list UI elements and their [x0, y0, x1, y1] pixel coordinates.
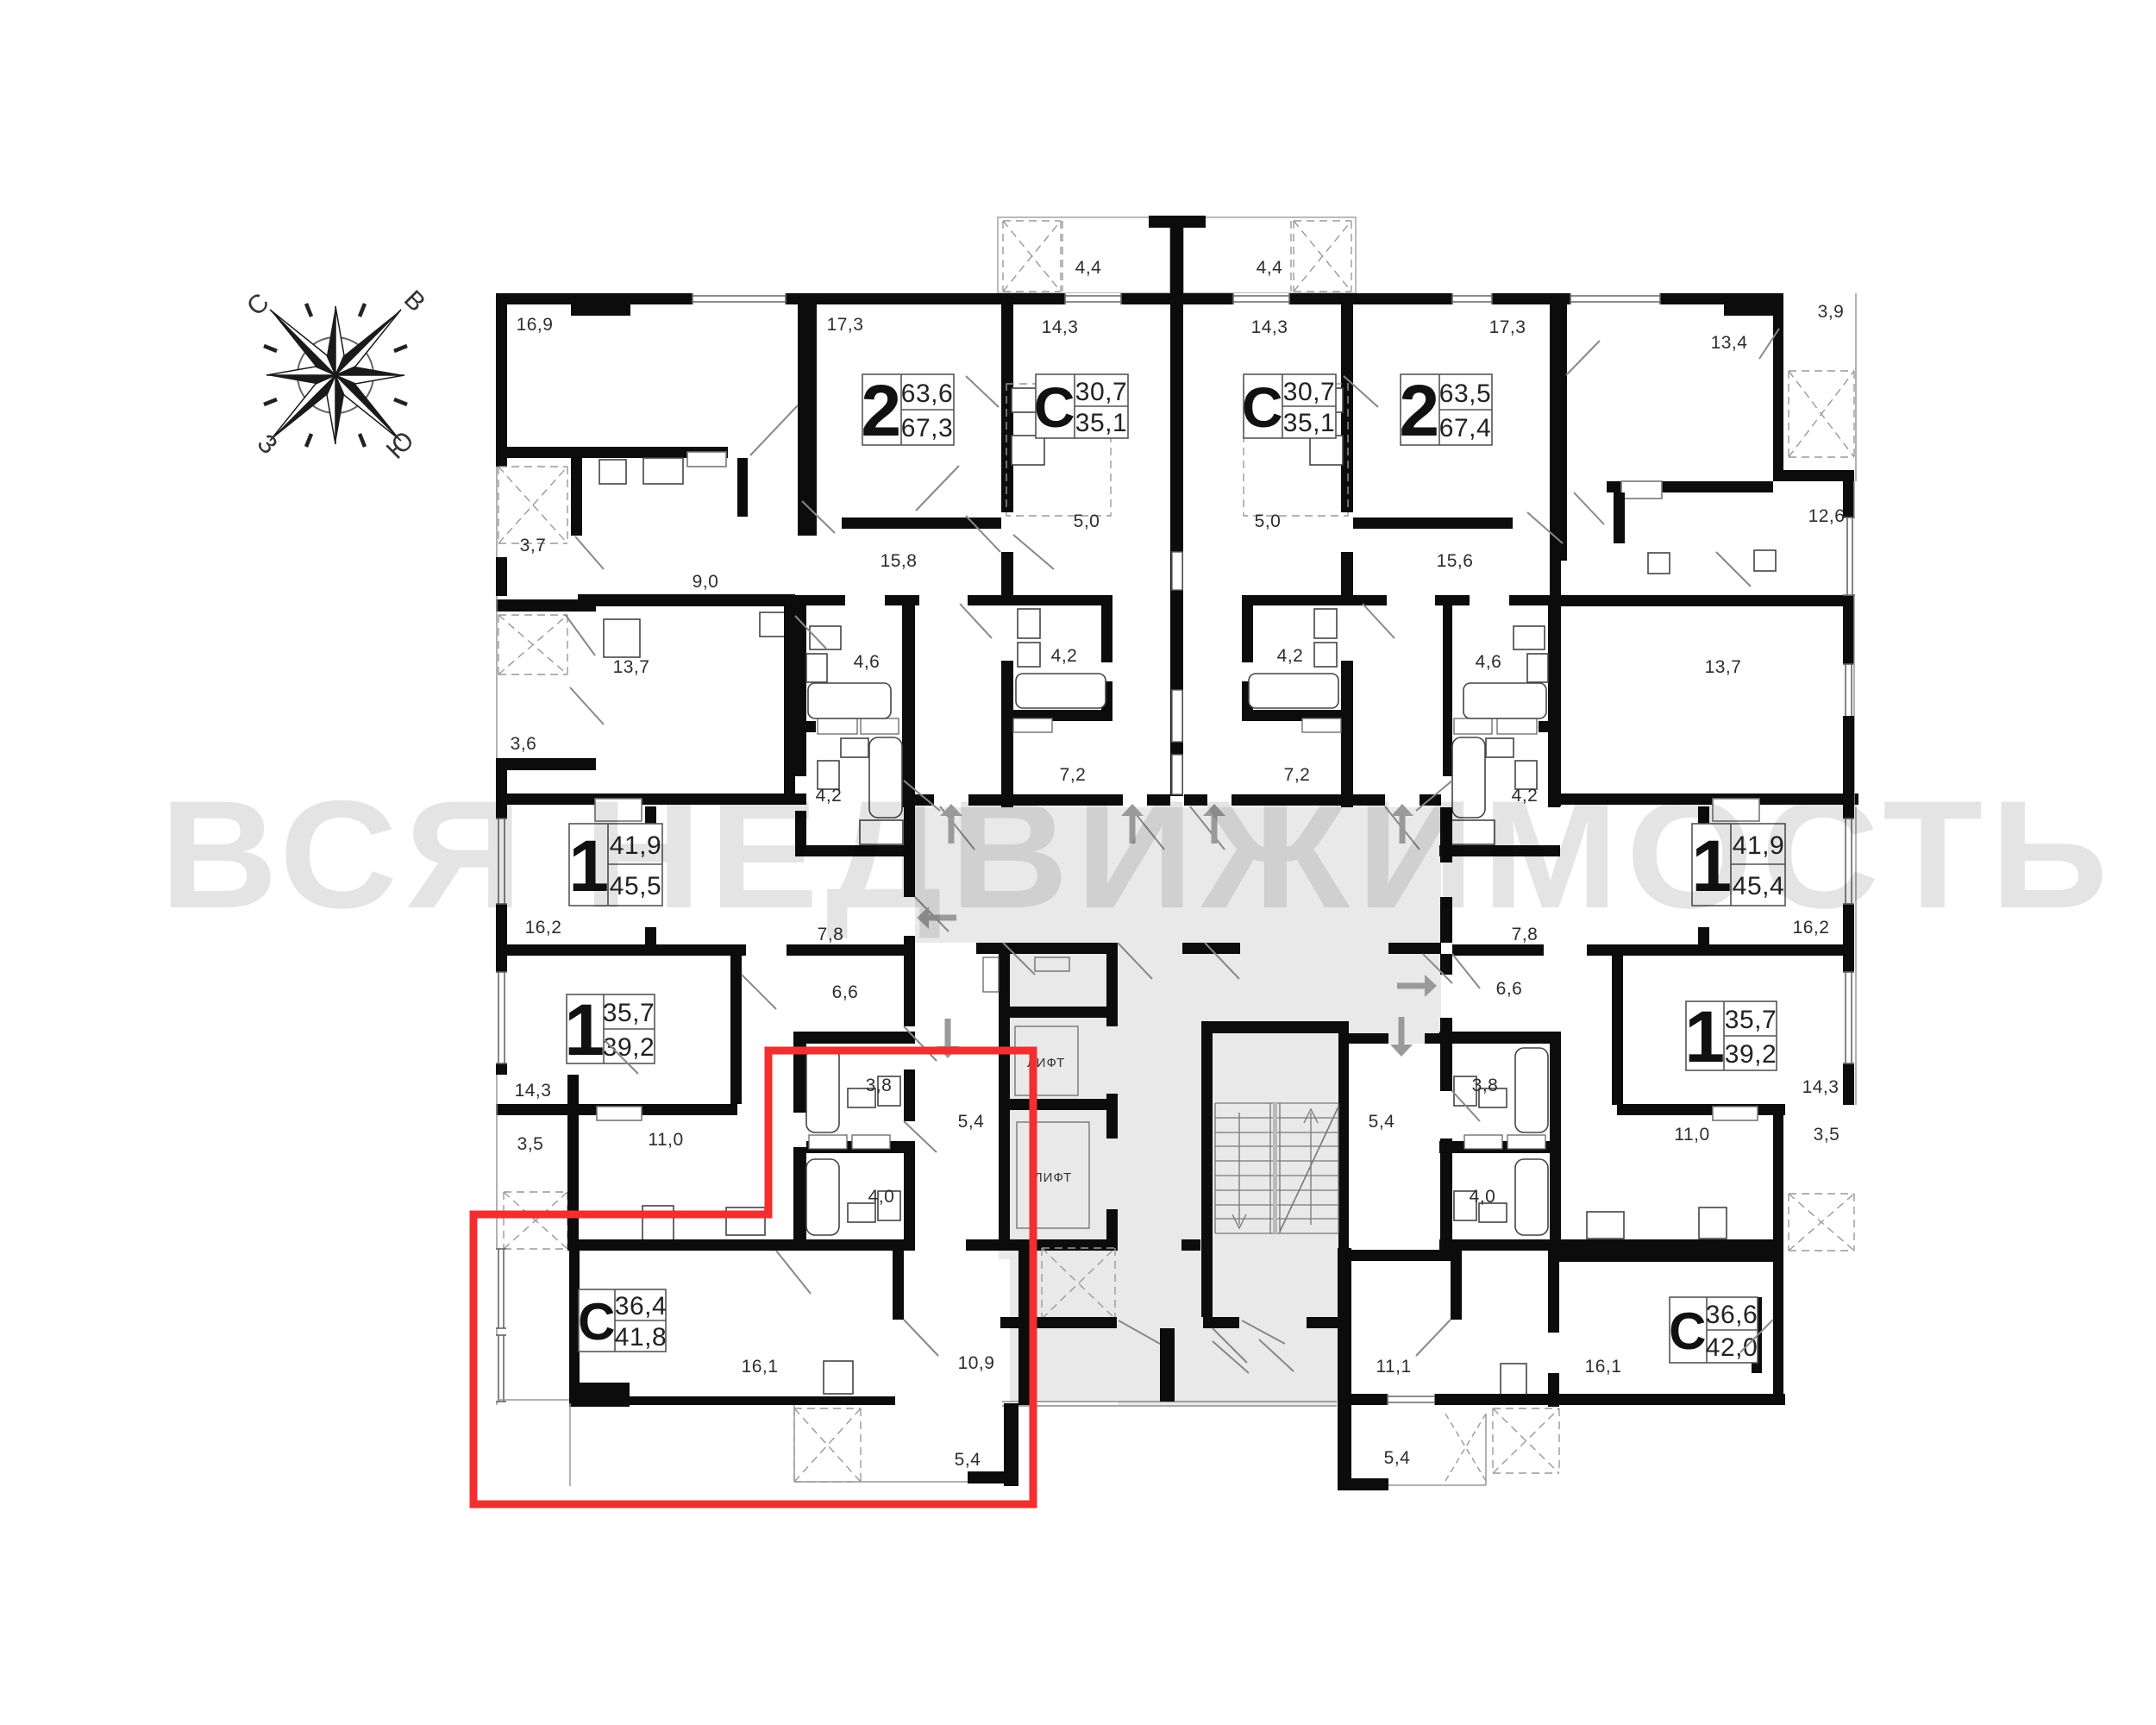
svg-text:3,5: 3,5	[517, 1134, 544, 1154]
svg-text:39,2: 39,2	[1725, 1040, 1777, 1069]
svg-text:3,8: 3,8	[1472, 1076, 1499, 1095]
svg-text:5,4: 5,4	[958, 1112, 985, 1132]
svg-text:5,0: 5,0	[1074, 511, 1100, 531]
svg-text:13,4: 13,4	[1711, 333, 1748, 353]
svg-text:4,4: 4,4	[1075, 258, 1102, 278]
svg-text:3,9: 3,9	[1818, 302, 1845, 322]
svg-text:6,6: 6,6	[832, 982, 859, 1002]
svg-text:39,2: 39,2	[603, 1033, 655, 1062]
svg-text:17,3: 17,3	[1489, 317, 1526, 337]
svg-text:35,1: 35,1	[1283, 409, 1335, 437]
svg-text:15,6: 15,6	[1437, 551, 1474, 571]
svg-text:13,7: 13,7	[1705, 657, 1742, 677]
svg-text:16,9: 16,9	[517, 315, 554, 335]
svg-text:35,7: 35,7	[603, 999, 655, 1027]
svg-text:4,2: 4,2	[1051, 646, 1078, 666]
svg-text:1: 1	[1684, 996, 1725, 1077]
svg-text:4,4: 4,4	[1257, 258, 1283, 278]
svg-text:15,8: 15,8	[881, 551, 918, 571]
svg-text:9,0: 9,0	[693, 572, 719, 592]
svg-text:1: 1	[564, 989, 605, 1070]
svg-text:41,8: 41,8	[615, 1323, 667, 1352]
svg-text:14,3: 14,3	[1042, 317, 1079, 337]
svg-text:2: 2	[861, 370, 901, 451]
svg-text:35,7: 35,7	[1725, 1006, 1777, 1034]
svg-text:36,6: 36,6	[1706, 1301, 1758, 1329]
svg-text:17,3: 17,3	[827, 315, 864, 335]
svg-text:36,4: 36,4	[615, 1292, 667, 1320]
svg-text:5,4: 5,4	[1384, 1448, 1411, 1468]
svg-text:63,5: 63,5	[1439, 379, 1491, 408]
svg-text:35,1: 35,1	[1075, 409, 1127, 437]
svg-text:4,2: 4,2	[1277, 646, 1304, 666]
svg-text:13,7: 13,7	[613, 657, 650, 677]
svg-text:14,3: 14,3	[1251, 317, 1288, 337]
svg-text:4,0: 4,0	[1470, 1187, 1496, 1207]
svg-text:16,1: 16,1	[1585, 1357, 1622, 1377]
svg-text:3,5: 3,5	[1814, 1125, 1840, 1145]
svg-text:30,7: 30,7	[1075, 378, 1127, 406]
svg-text:5,4: 5,4	[955, 1450, 981, 1470]
svg-text:3,8: 3,8	[866, 1076, 893, 1095]
svg-text:14,3: 14,3	[515, 1081, 552, 1101]
svg-text:16,1: 16,1	[742, 1357, 779, 1377]
svg-text:6,6: 6,6	[1496, 979, 1523, 999]
svg-text:С: С	[241, 288, 275, 322]
svg-text:C: C	[578, 1293, 616, 1351]
svg-text:5,0: 5,0	[1255, 511, 1282, 531]
svg-text:10,9: 10,9	[958, 1353, 995, 1373]
svg-text:3,6: 3,6	[511, 734, 537, 754]
svg-text:11,0: 11,0	[1674, 1125, 1709, 1145]
svg-text:67,3: 67,3	[901, 414, 953, 442]
svg-text:11,0: 11,0	[648, 1130, 683, 1150]
svg-text:63,6: 63,6	[901, 379, 953, 408]
svg-text:4,0: 4,0	[868, 1187, 895, 1207]
svg-text:4,6: 4,6	[1476, 652, 1502, 672]
svg-text:12,6: 12,6	[1808, 506, 1846, 526]
svg-text:ЛИФТ: ЛИФТ	[1034, 1170, 1072, 1185]
svg-text:3,7: 3,7	[520, 536, 547, 555]
svg-text:В: В	[398, 285, 430, 317]
svg-text:67,4: 67,4	[1439, 414, 1491, 442]
svg-text:ВСЯ НЕДВИЖИМОСТЬ: ВСЯ НЕДВИЖИМОСТЬ	[160, 768, 2115, 940]
svg-text:C: C	[1242, 375, 1283, 439]
svg-text:C: C	[1034, 375, 1075, 439]
svg-text:5,4: 5,4	[1369, 1112, 1395, 1132]
svg-text:Ю: Ю	[381, 426, 420, 465]
svg-text:14,3: 14,3	[1802, 1077, 1839, 1097]
svg-text:11,1: 11,1	[1376, 1357, 1411, 1377]
svg-text:2: 2	[1399, 370, 1439, 451]
svg-text:42,0: 42,0	[1706, 1333, 1758, 1362]
svg-text:C: C	[1669, 1302, 1707, 1360]
svg-text:30,7: 30,7	[1283, 378, 1335, 406]
svg-text:4,6: 4,6	[854, 652, 881, 672]
